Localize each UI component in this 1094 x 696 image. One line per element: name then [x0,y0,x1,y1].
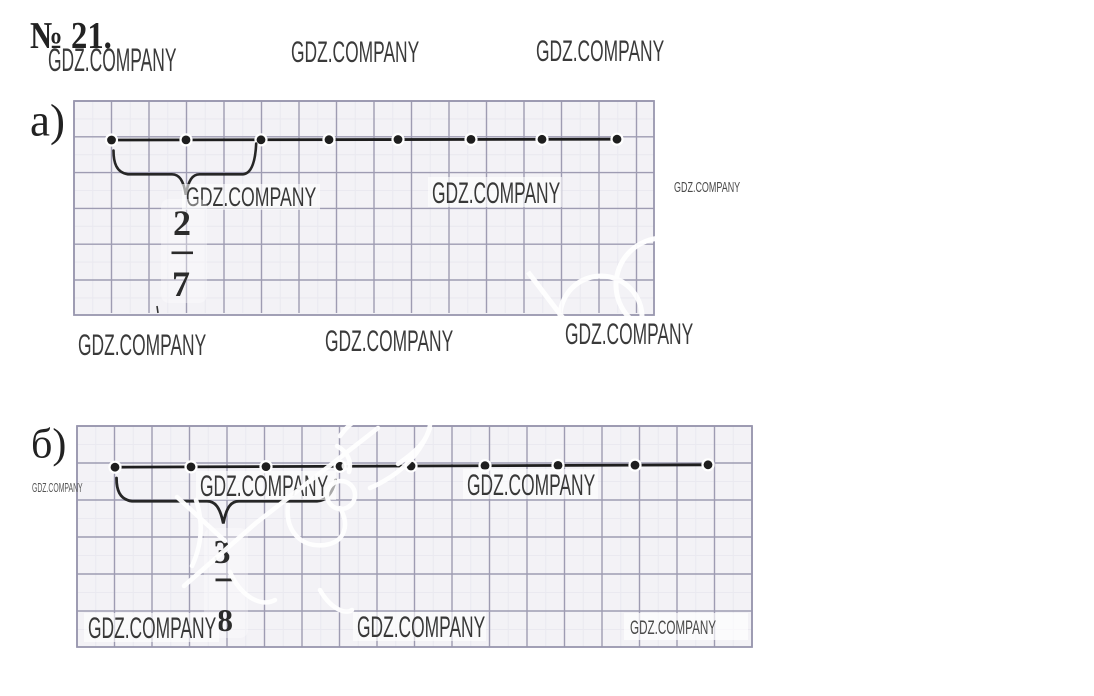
svg-text:GDZ.COMPANY: GDZ.COMPANY [200,470,328,503]
svg-text:GDZ.COMPANY: GDZ.COMPANY [432,177,560,210]
svg-text:GDZ.COMPANY: GDZ.COMPANY [630,618,716,638]
svg-text:GDZ.COMPANY: GDZ.COMPANY [325,325,453,358]
svg-text:GDZ.COMPANY: GDZ.COMPANY [88,612,216,645]
svg-text:GDZ.COMPANY: GDZ.COMPANY [32,482,83,496]
svg-text:а): а) [30,96,65,146]
svg-text:7: 7 [172,264,190,304]
svg-text:GDZ.COMPANY: GDZ.COMPANY [536,35,664,68]
svg-text:2: 2 [173,203,191,243]
svg-text:GDZ.COMPANY: GDZ.COMPANY [674,179,740,196]
svg-text:8: 8 [217,602,233,638]
svg-text:GDZ.COMPANY: GDZ.COMPANY [565,318,693,351]
svg-text:GDZ.COMPANY: GDZ.COMPANY [48,44,176,79]
svg-text:б): б) [31,422,66,468]
svg-text:GDZ.COMPANY: GDZ.COMPANY [291,36,419,69]
svg-text:GDZ.COMPANY: GDZ.COMPANY [78,329,206,362]
svg-text:GDZ.COMPANY: GDZ.COMPANY [467,469,595,502]
svg-text:GDZ.COMPANY: GDZ.COMPANY [357,611,485,644]
